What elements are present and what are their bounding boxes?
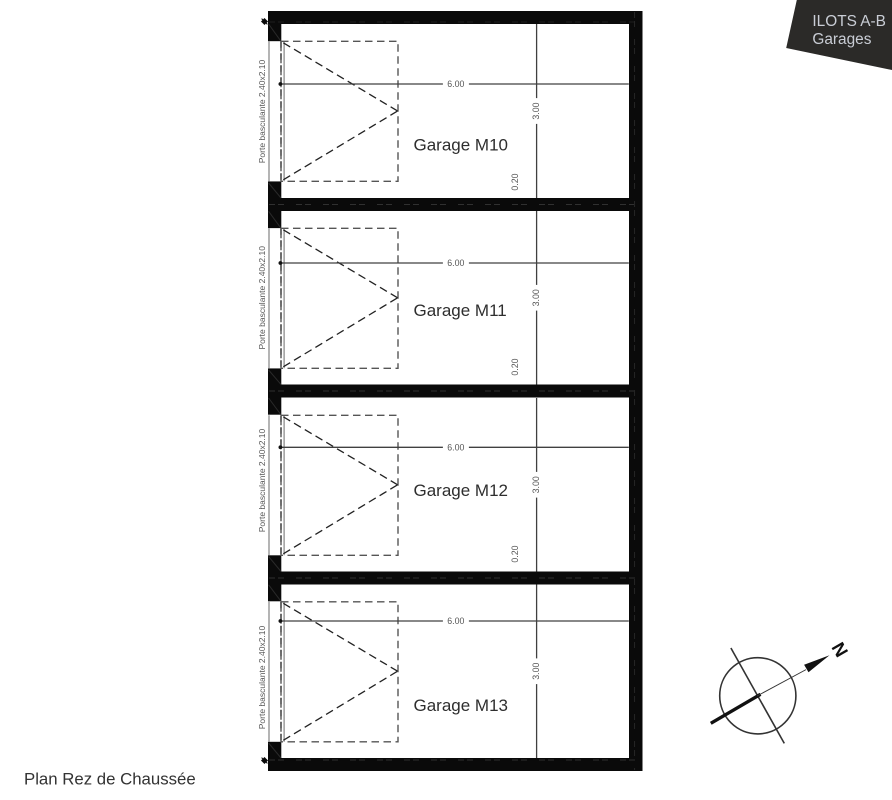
svg-text:Garages: Garages [812, 31, 871, 48]
svg-text:3.00: 3.00 [531, 289, 541, 306]
svg-text:6.00: 6.00 [447, 442, 464, 452]
svg-text:Porte basculante 2.40x2.10: Porte basculante 2.40x2.10 [257, 625, 267, 729]
svg-text:Garage M12: Garage M12 [414, 481, 509, 500]
svg-text:0.20: 0.20 [510, 173, 520, 190]
svg-text:Porte basculante 2.40x2.10: Porte basculante 2.40x2.10 [257, 59, 267, 163]
svg-text:Plan Rez de Chaussée: Plan Rez de Chaussée [24, 770, 196, 789]
svg-text:3.00: 3.00 [531, 102, 541, 119]
svg-text:3.00: 3.00 [531, 476, 541, 493]
svg-text:0.20: 0.20 [510, 358, 520, 375]
svg-text:N: N [828, 638, 853, 660]
svg-text:Garage M13: Garage M13 [414, 696, 509, 715]
svg-text:6.00: 6.00 [447, 258, 464, 268]
svg-text:Porte basculante 2.40x2.10: Porte basculante 2.40x2.10 [257, 246, 267, 350]
svg-text:ILOTS A-B: ILOTS A-B [812, 13, 886, 30]
svg-text:0.20: 0.20 [510, 545, 520, 562]
svg-text:Porte basculante 2.40x2.10: Porte basculante 2.40x2.10 [257, 428, 267, 532]
svg-text:3.00: 3.00 [531, 663, 541, 680]
svg-text:6.00: 6.00 [447, 79, 464, 89]
svg-text:Garage M11: Garage M11 [414, 301, 507, 320]
svg-text:Garage M10: Garage M10 [414, 135, 509, 154]
svg-text:6.00: 6.00 [447, 616, 464, 626]
